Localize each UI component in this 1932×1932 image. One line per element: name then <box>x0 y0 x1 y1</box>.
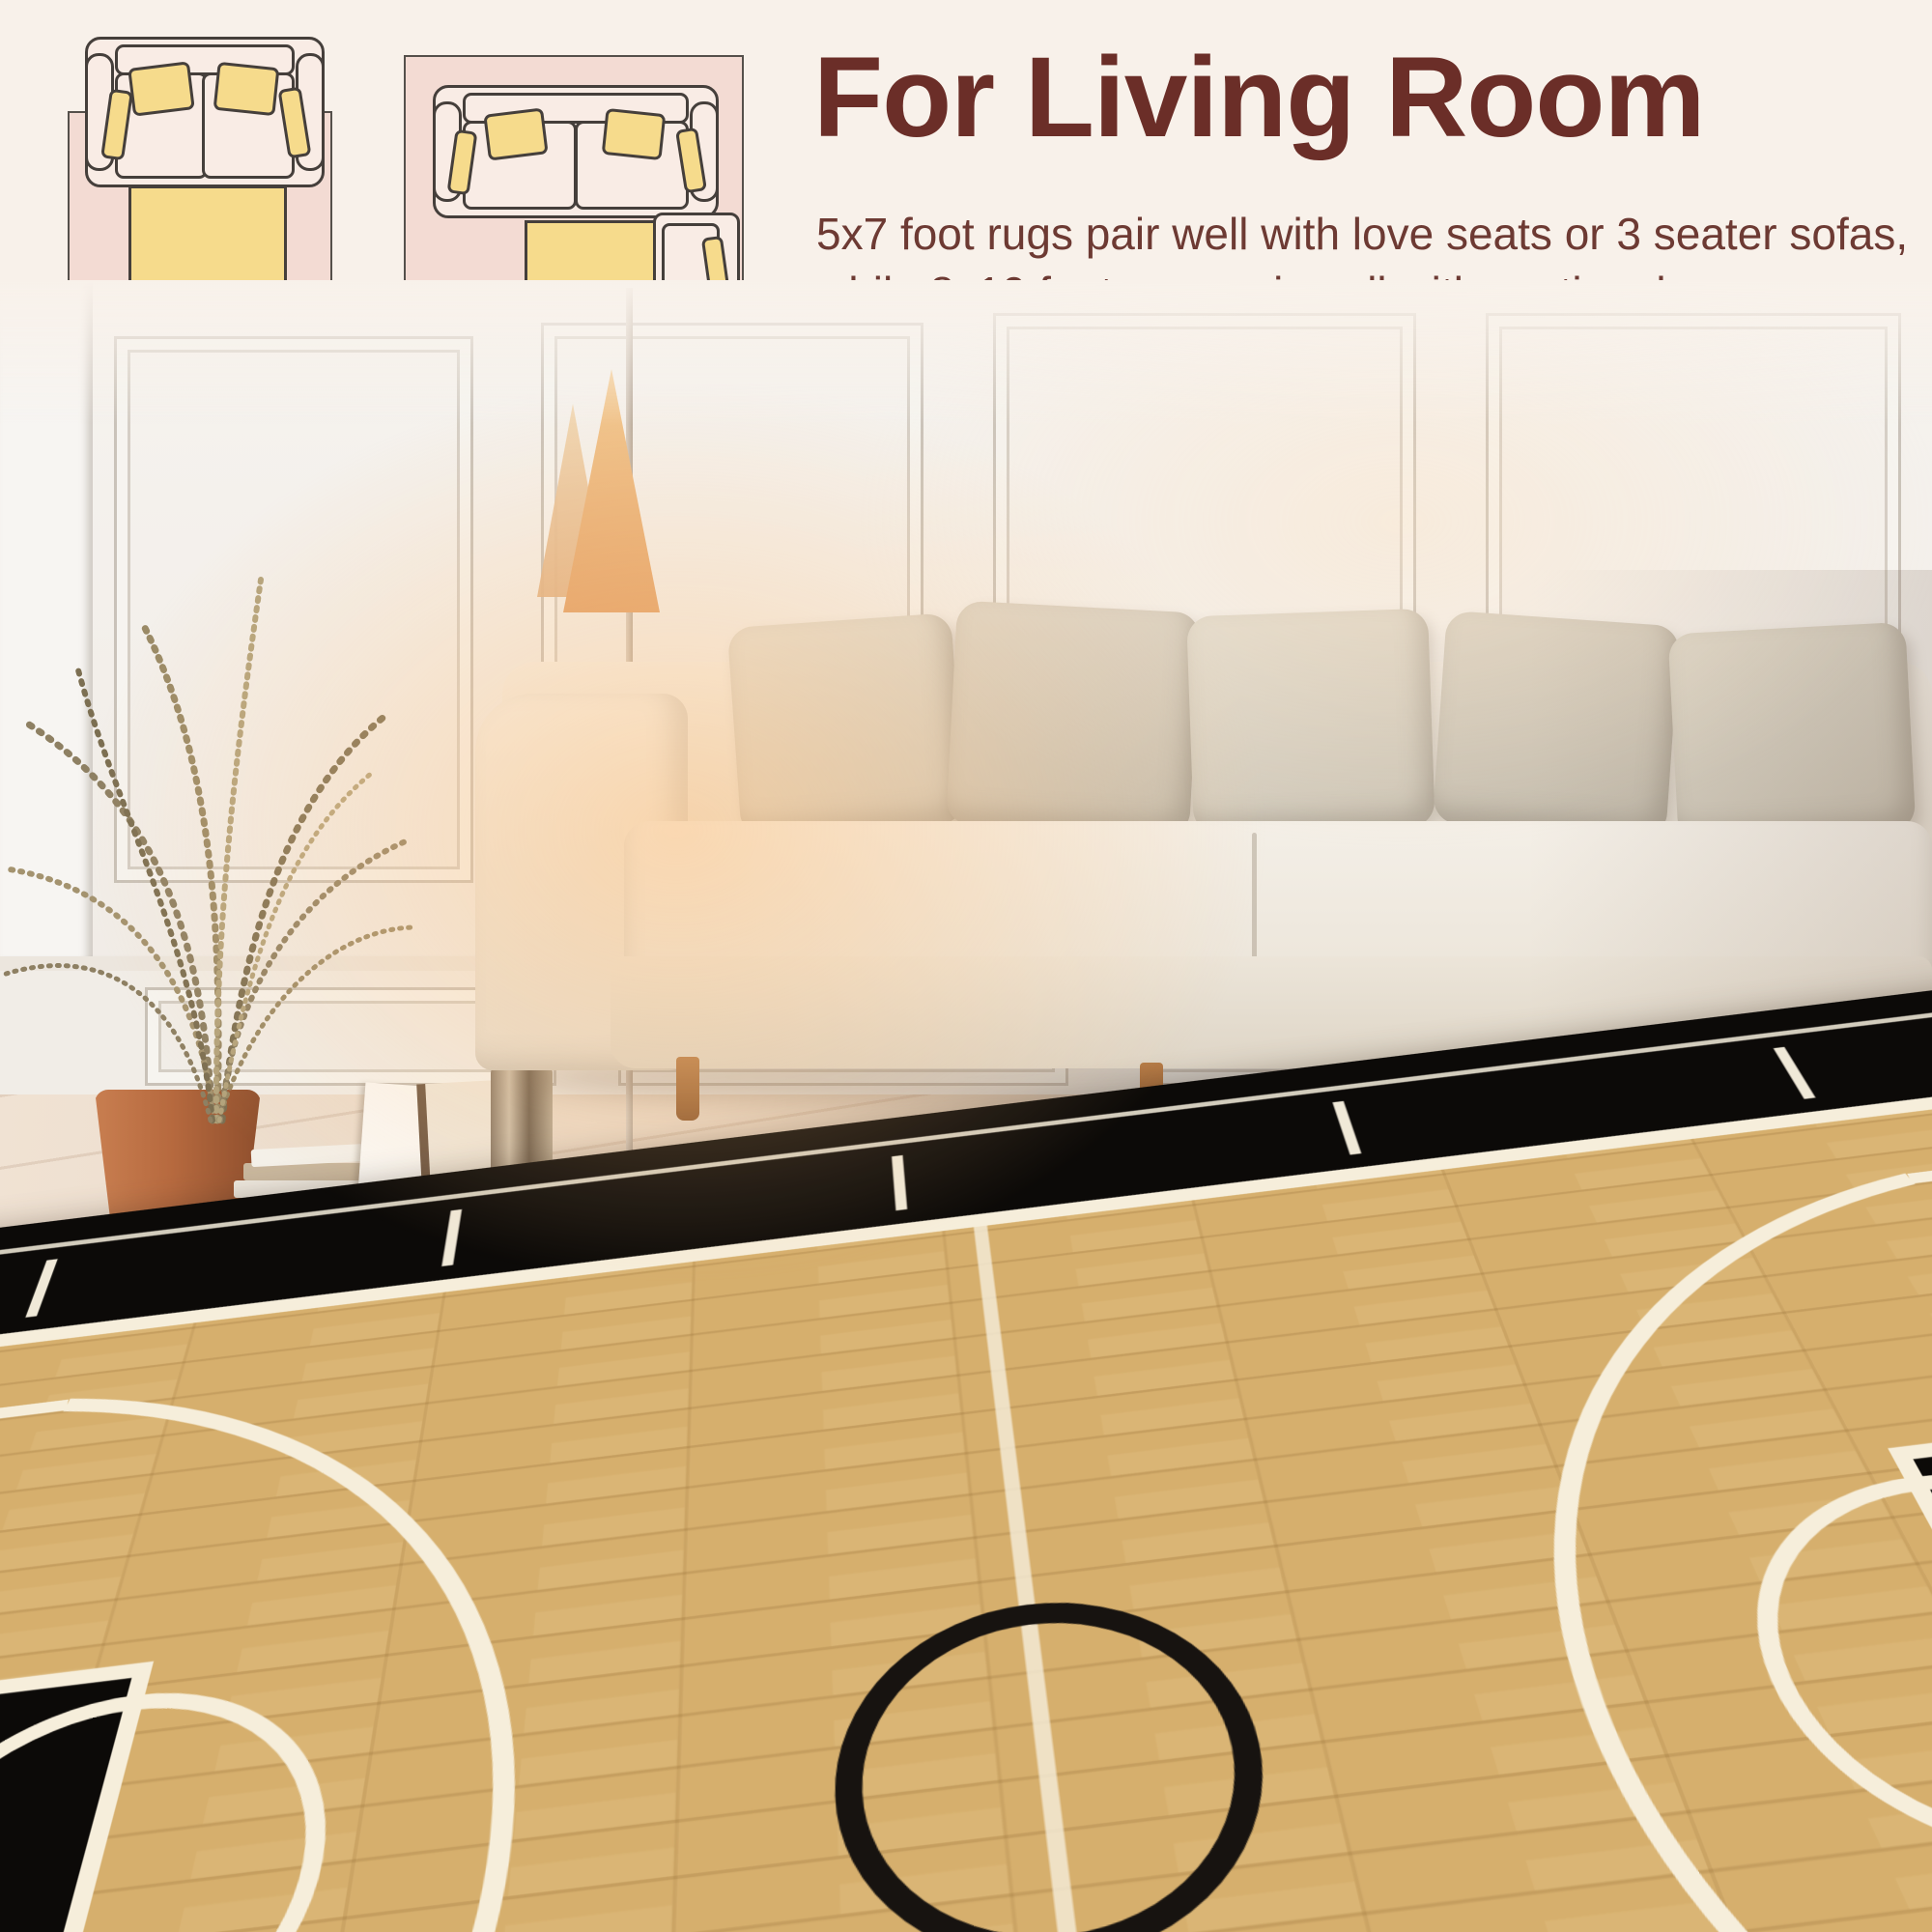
photo-top-fade <box>0 280 1932 425</box>
coffee-table-icon <box>128 185 287 296</box>
dried-palm-plant <box>0 522 425 1140</box>
sofa-pillow <box>1186 609 1435 836</box>
page-title: For Living Room <box>813 39 1895 158</box>
loveseat-icon <box>85 37 325 187</box>
sofa-icon <box>433 85 719 218</box>
product-infographic: For Living Room 5x7 foot rugs pair well … <box>0 0 1932 1932</box>
living-room-photo: PAEF7 <box>0 280 1932 1932</box>
sofa-pillow <box>946 601 1201 838</box>
sofa-pillow <box>727 612 966 838</box>
sofa-leg <box>676 1057 699 1121</box>
